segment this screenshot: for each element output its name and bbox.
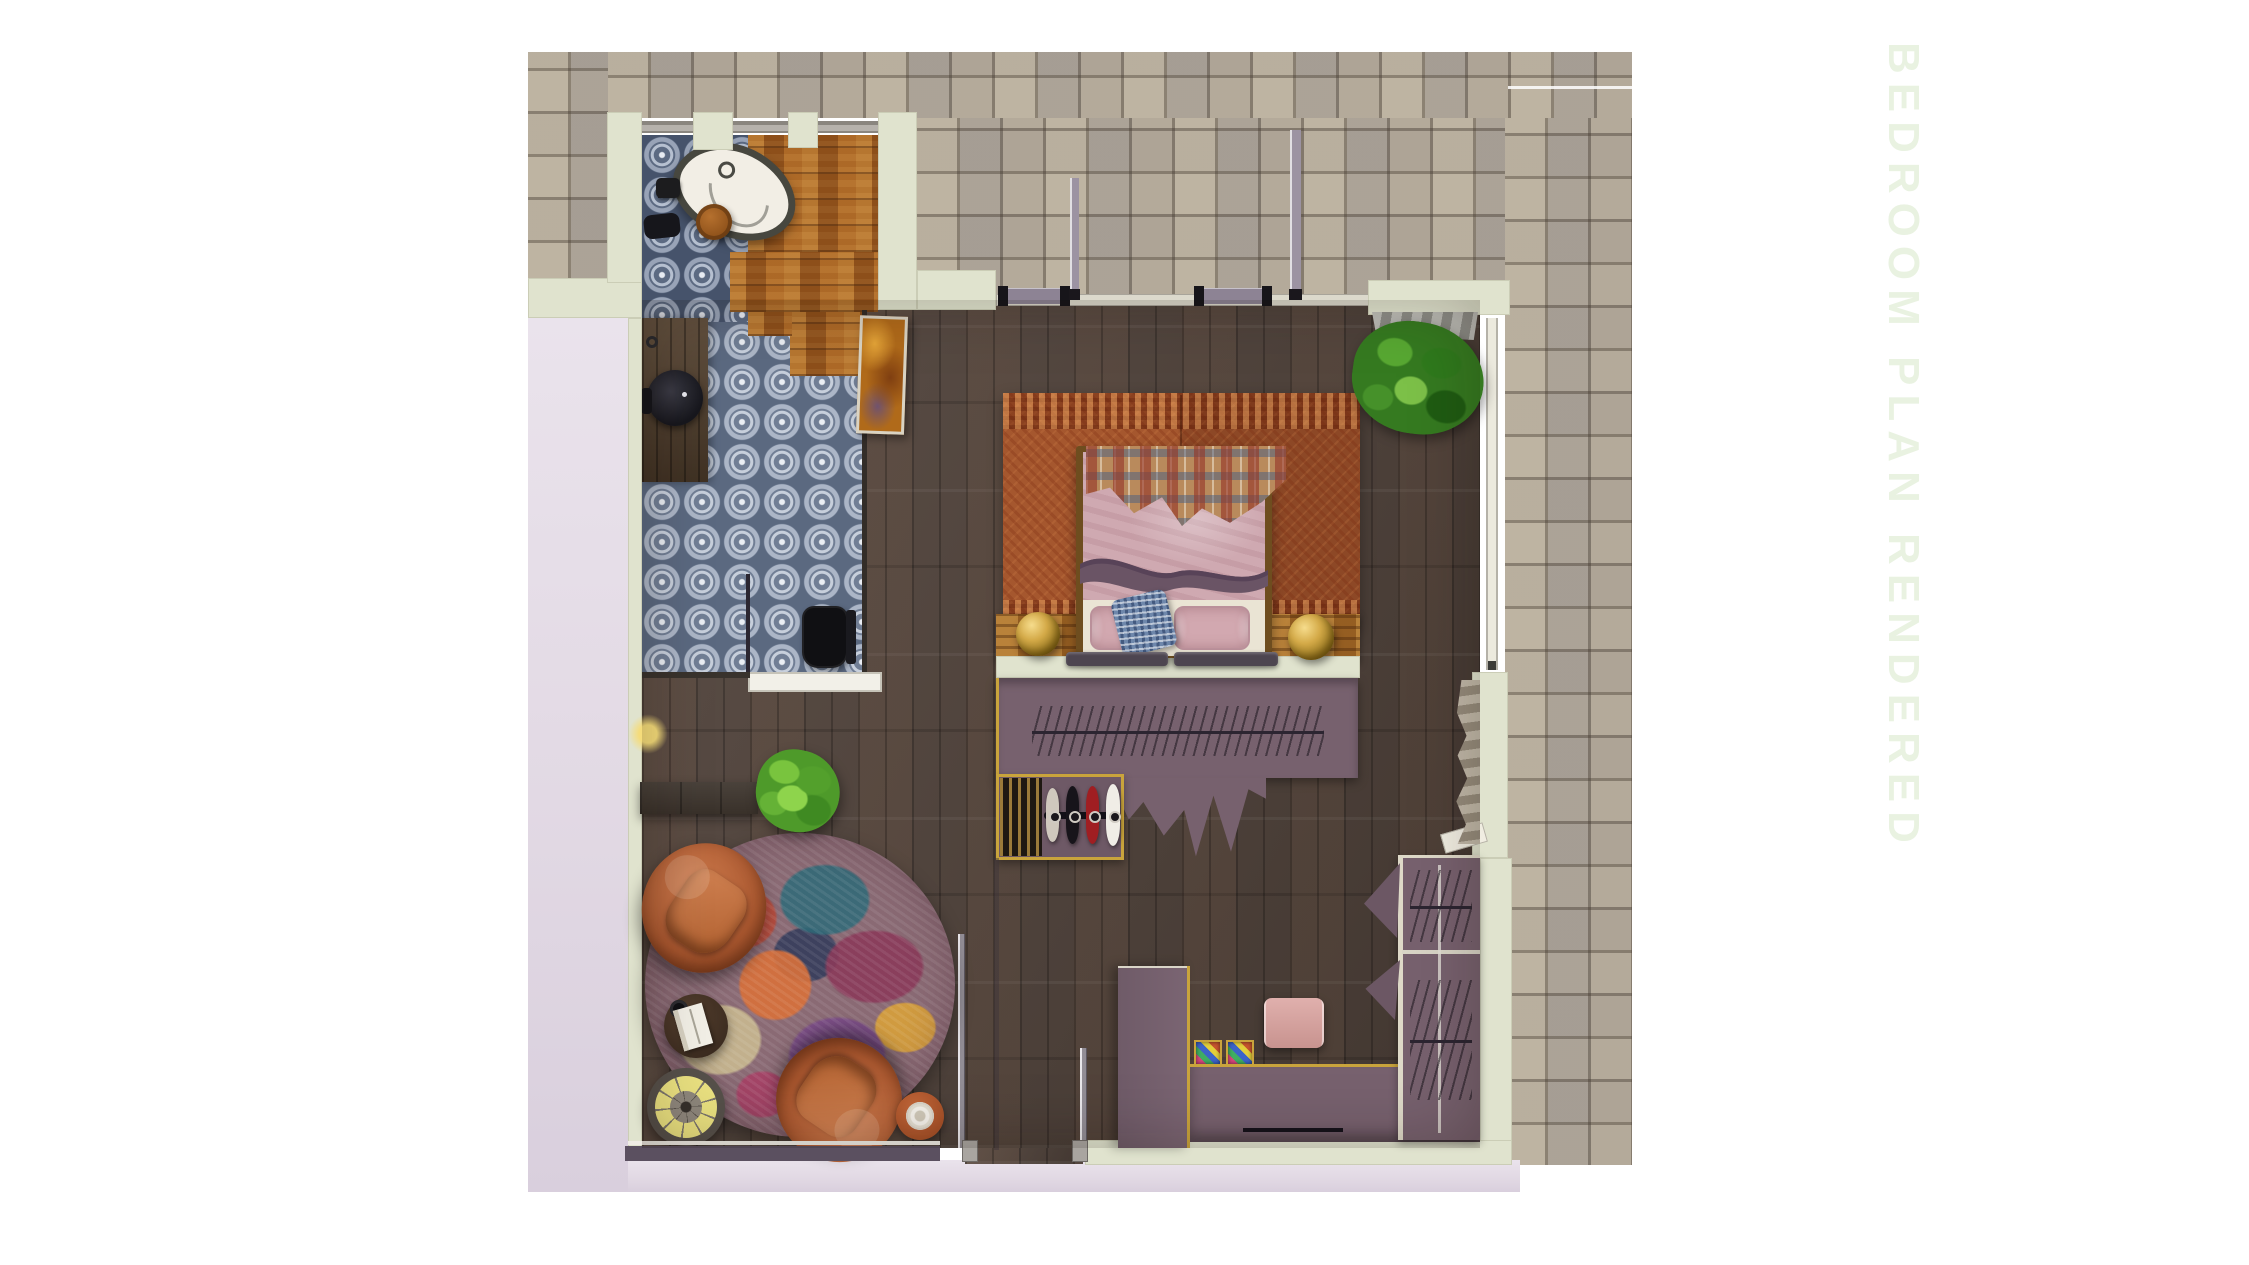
wall-pillar-northwest	[607, 112, 642, 283]
closet-right-hangers-lower	[1410, 980, 1472, 1100]
south-wall-hairline	[628, 1141, 940, 1145]
sill-northeast	[1368, 280, 1510, 315]
patio-pavers-north	[917, 118, 1505, 300]
bath-mat	[643, 212, 681, 240]
pillow-right	[1174, 606, 1250, 650]
north-sill-segment-2	[1196, 288, 1270, 304]
bathtub-faucet	[656, 178, 680, 198]
shower-threshold	[748, 672, 882, 692]
wall-corner-west	[528, 278, 642, 318]
purple-door-panel	[1118, 966, 1190, 1148]
partition-wall-b	[1080, 1048, 1087, 1150]
partition-wall-a	[958, 934, 965, 1148]
wall-east-low	[1480, 858, 1512, 1165]
entry-jamb-right	[1072, 1140, 1088, 1162]
wall-L-arm	[917, 270, 996, 310]
toilet	[802, 606, 848, 668]
closet-right-divider	[1402, 950, 1480, 954]
hanging-garment-gray	[1046, 788, 1059, 842]
glass-post-b	[1290, 130, 1301, 300]
spoke-drink-table	[647, 1068, 725, 1146]
headboard-bar-left	[1066, 652, 1168, 666]
pink-ottoman	[1264, 998, 1324, 1048]
north-sill-segment-1	[1000, 288, 1068, 304]
hanging-garment-white	[1106, 784, 1120, 846]
floor-light-glow	[628, 714, 668, 754]
entry-jamb-left	[962, 1140, 978, 1162]
purple-wave-throw	[1080, 542, 1268, 608]
headboard-bar-right	[1174, 652, 1278, 666]
sink-faucet	[641, 388, 652, 414]
wall-artwork	[856, 315, 908, 435]
window-post-2	[788, 112, 818, 148]
page-title: BEDROOM PLAN RENDERED	[1878, 42, 1928, 852]
closet-slats	[1000, 778, 1042, 856]
paver-highlight-line	[1508, 86, 1632, 89]
patio-pavers-top-left	[528, 52, 608, 283]
shower-glass-divider	[746, 574, 750, 672]
sphere-lamp-left	[1016, 612, 1060, 656]
hanging-garment-black	[1066, 786, 1079, 844]
bathroom-wood-deck-3	[790, 312, 865, 376]
bathroom-wood-deck-2	[730, 252, 878, 312]
bath-stool	[696, 204, 732, 240]
sphere-lamp-right	[1288, 614, 1334, 660]
exterior-walk-left	[528, 318, 628, 1192]
wardrobe-hanger-rail	[1032, 706, 1324, 756]
tile-edge-line	[642, 672, 750, 678]
south-wall-bar	[625, 1146, 940, 1161]
closet-side-shadow	[994, 858, 999, 1150]
toilet-tank	[846, 610, 856, 664]
storage-basket-2	[1226, 1040, 1254, 1066]
wall-L-vertical	[878, 112, 917, 310]
patio-pavers-right	[1505, 118, 1632, 1165]
closet-handle	[1243, 1128, 1343, 1132]
patio-pavers-top-band	[608, 52, 1632, 118]
glass-mullion-east	[1486, 318, 1498, 670]
bathroom-window-rail	[642, 121, 878, 133]
storage-basket-1	[1194, 1040, 1222, 1066]
wood-bench	[640, 782, 758, 814]
closet-right-hangers-upper	[1410, 870, 1472, 942]
bathroom-wood-deck-4	[748, 312, 792, 336]
entry-floor	[965, 1148, 1083, 1164]
terracotta-side-table	[896, 1092, 944, 1140]
window-post-1	[693, 112, 733, 150]
vessel-sink	[647, 370, 703, 426]
vanity-knob	[646, 336, 658, 348]
floor-plan-canvas: BEDROOM PLAN RENDERED	[0, 0, 2249, 1265]
hanging-garment-red	[1086, 786, 1099, 844]
glass-post-a	[1070, 178, 1079, 300]
